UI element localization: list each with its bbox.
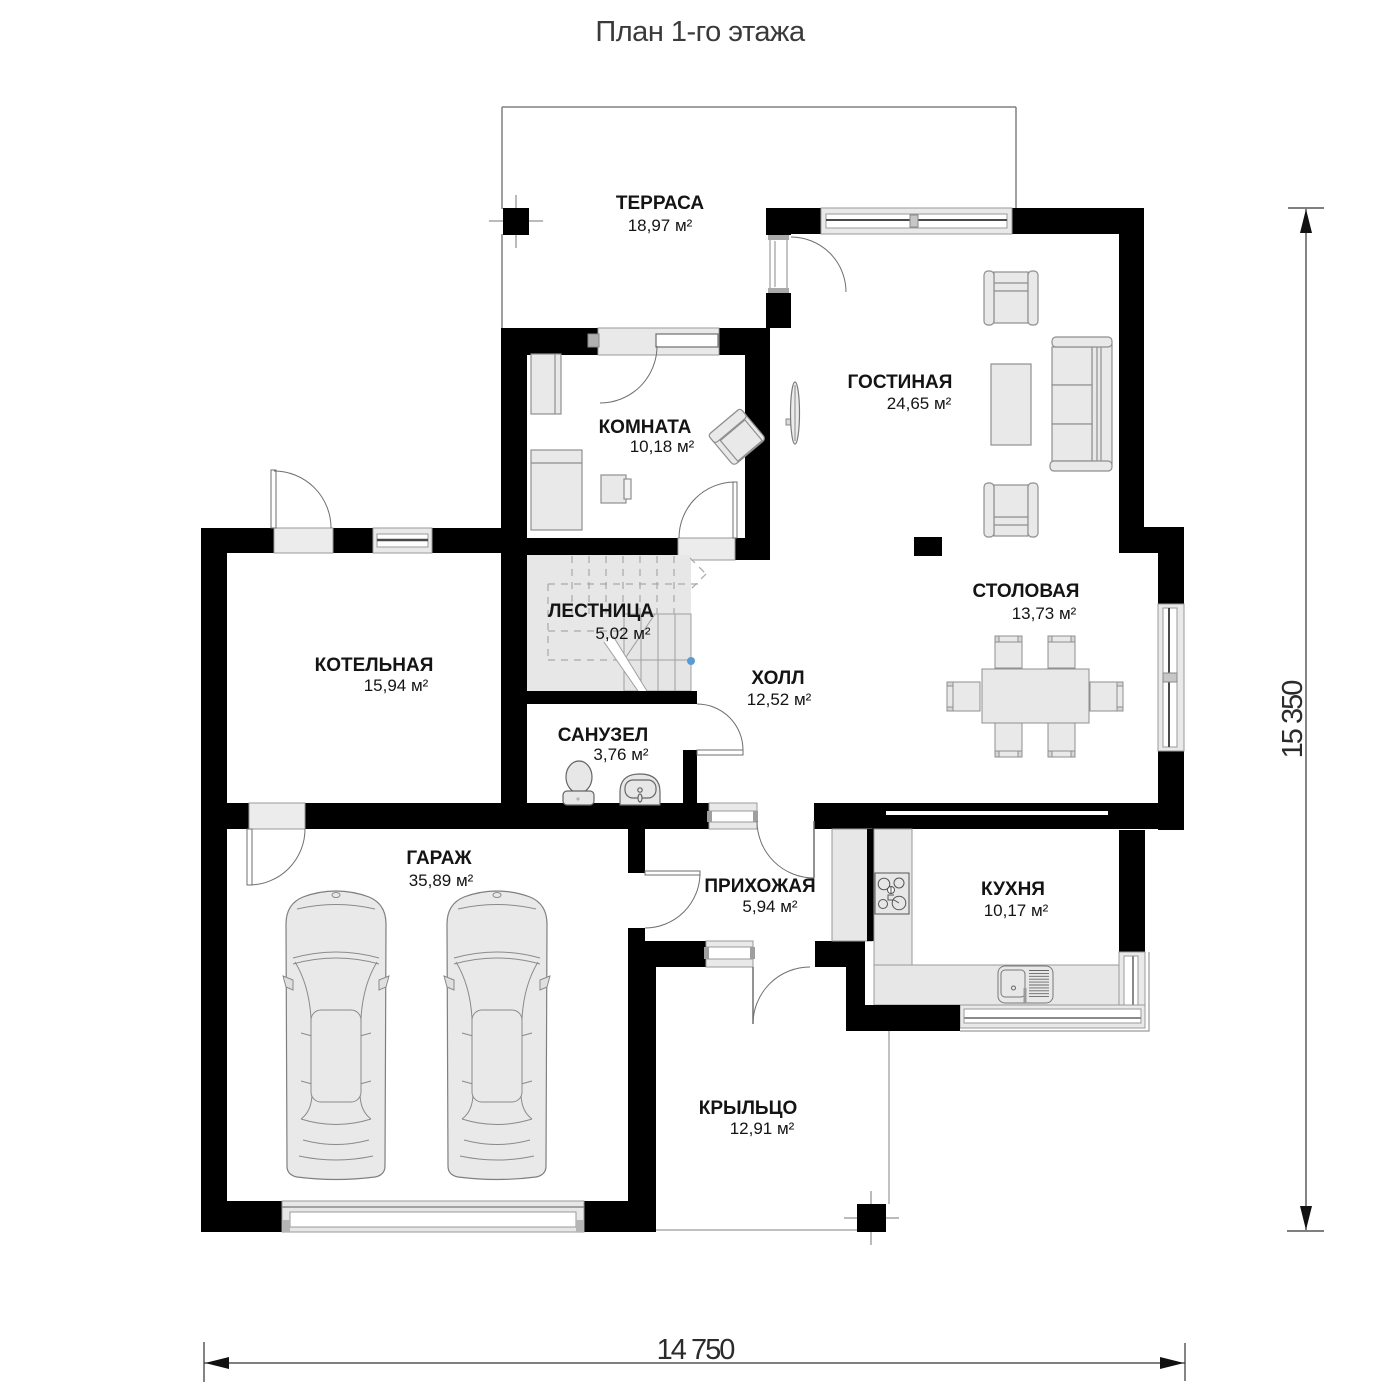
- svg-text:12,91 м²: 12,91 м²: [730, 1119, 795, 1138]
- svg-text:СТОЛОВАЯ: СТОЛОВАЯ: [973, 581, 1080, 602]
- svg-text:САНУЗЕЛ: САНУЗЕЛ: [558, 725, 648, 746]
- svg-text:35,89 м²: 35,89 м²: [409, 871, 474, 890]
- svg-text:24,65 м²: 24,65 м²: [887, 394, 952, 413]
- svg-text:КРЫЛЬЦО: КРЫЛЬЦО: [699, 1098, 798, 1119]
- svg-text:КОТЕЛЬНАЯ: КОТЕЛЬНАЯ: [315, 655, 434, 676]
- svg-text:План 1-го этажа: План 1-го этажа: [595, 16, 806, 48]
- svg-text:ГОСТИНАЯ: ГОСТИНАЯ: [848, 372, 953, 393]
- svg-text:13,73 м²: 13,73 м²: [1012, 604, 1077, 623]
- svg-text:14 750: 14 750: [657, 1334, 735, 1366]
- svg-text:5,02 м²: 5,02 м²: [595, 624, 650, 643]
- svg-text:КОМНАТА: КОМНАТА: [599, 417, 692, 438]
- svg-text:15,94 м²: 15,94 м²: [364, 676, 429, 695]
- svg-text:15 350: 15 350: [1277, 681, 1309, 759]
- svg-text:ХОЛЛ: ХОЛЛ: [751, 668, 804, 689]
- svg-text:18,97 м²: 18,97 м²: [628, 216, 693, 235]
- svg-text:ГАРАЖ: ГАРАЖ: [406, 848, 472, 869]
- svg-text:ТЕРРАСА: ТЕРРАСА: [616, 193, 704, 214]
- svg-text:10,18 м²: 10,18 м²: [630, 437, 695, 456]
- svg-text:ПРИХОЖАЯ: ПРИХОЖАЯ: [704, 876, 815, 897]
- svg-text:3,76 м²: 3,76 м²: [593, 745, 648, 764]
- svg-text:КУХНЯ: КУХНЯ: [981, 879, 1045, 900]
- svg-text:5,94 м²: 5,94 м²: [742, 897, 797, 916]
- svg-text:12,52 м²: 12,52 м²: [747, 690, 812, 709]
- svg-text:ЛЕСТНИЦА: ЛЕСТНИЦА: [548, 601, 654, 622]
- svg-text:10,17 м²: 10,17 м²: [984, 901, 1049, 920]
